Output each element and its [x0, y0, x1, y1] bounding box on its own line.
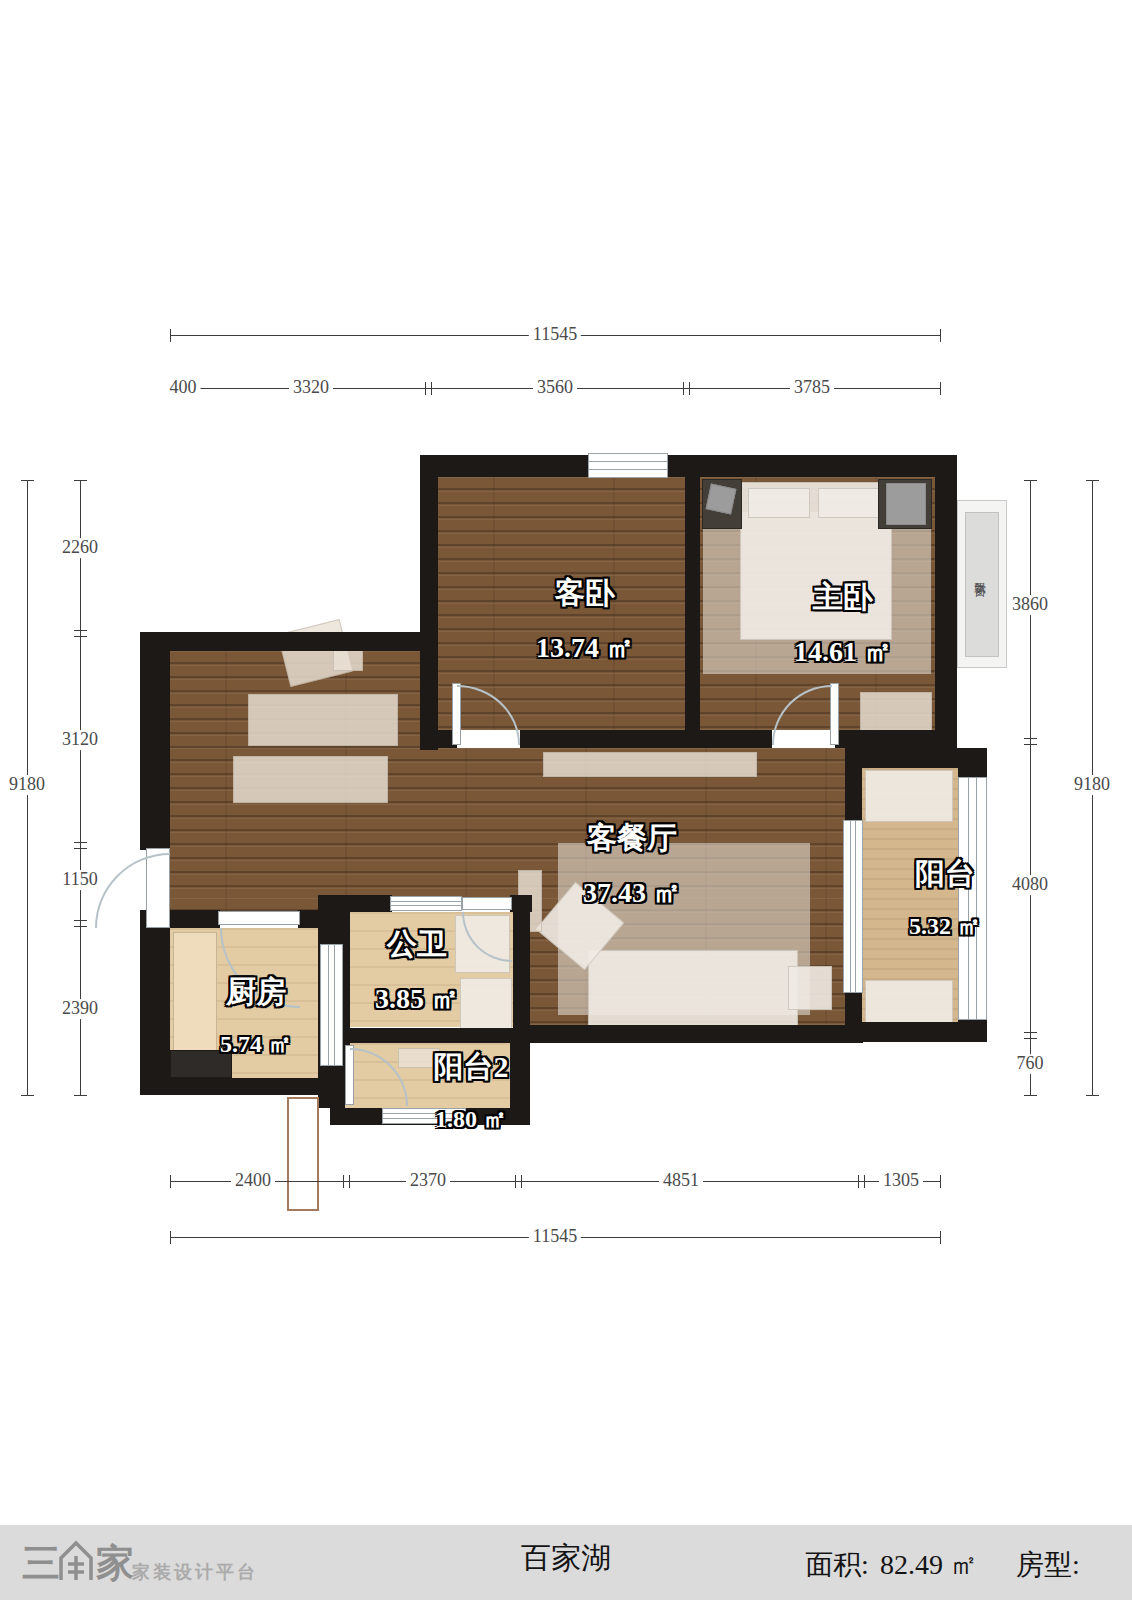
room-label-living-dining: 客餐厅 37.43 ㎡ — [583, 818, 681, 912]
room-label-balcony2: 阳台2 1.80 ㎡ — [434, 1047, 509, 1135]
room-label-balcony: 阳台 5.32 ㎡ — [909, 854, 981, 942]
wall-segment — [158, 632, 438, 651]
brand-logo-prefix: 三 — [22, 1538, 60, 1589]
dimension-label: 4080 — [1008, 875, 1052, 895]
window — [588, 453, 668, 478]
bay-window-sill — [965, 512, 999, 657]
dimension-label: 3120 — [58, 730, 102, 750]
room-area: 13.74 ㎡ — [536, 629, 634, 667]
furniture-washer — [865, 770, 953, 822]
dimension-label: 1150 — [58, 870, 101, 890]
area-label: 面积: — [805, 1546, 869, 1584]
wall-segment — [685, 477, 700, 730]
wall-segment — [140, 1078, 332, 1095]
bay-window-label: 飘窗 — [971, 572, 988, 576]
dimension-right-total: 9180 — [1086, 480, 1099, 1096]
furniture-decor — [886, 483, 926, 525]
dimension-label: 3560 — [533, 378, 577, 398]
room-name: 阳台 — [915, 854, 975, 895]
dimension-label: 760 — [1013, 1054, 1048, 1074]
wall-segment — [835, 730, 957, 748]
flue-duct — [287, 1097, 319, 1211]
dimension-left-total: 9180 — [21, 480, 34, 1096]
dimension-left-segments: 2260 3120 1150 2390 — [74, 480, 87, 1096]
room-label-bathroom: 公卫 3.85 ㎡ — [375, 924, 459, 1018]
dimension-label: 9180 — [1070, 775, 1114, 795]
furniture-wardrobe — [248, 694, 398, 746]
wall-segment — [520, 730, 772, 748]
room-area: 5.32 ㎡ — [909, 910, 981, 942]
wall-segment — [513, 895, 530, 1043]
project-name: 百家湖 — [521, 1538, 611, 1579]
sliding-door-balcony — [843, 820, 863, 993]
room-area: 5.74 ㎡ — [220, 1028, 292, 1060]
house-glyph-icon — [58, 1540, 94, 1582]
room-area: 1.80 ㎡ — [435, 1103, 507, 1135]
wall-segment — [958, 1020, 987, 1042]
dimension-label: 3785 — [790, 378, 834, 398]
brand-tagline: 家装设计平台 — [132, 1560, 258, 1584]
furniture-pillow — [748, 488, 810, 518]
wall-segment — [140, 928, 170, 1095]
wall-segment — [140, 632, 170, 850]
dimension-bottom-segments: 2400 2370 4851 1305 — [170, 1175, 941, 1188]
room-name: 厨房 — [226, 972, 286, 1013]
room-name: 阳台2 — [434, 1047, 509, 1088]
furniture-decor — [706, 484, 737, 515]
dimension-top-segments: 400 3320 3560 3785 — [170, 382, 941, 395]
furniture-decor — [333, 649, 363, 671]
dimension-label: 2390 — [58, 999, 102, 1019]
room-label-master-bedroom: 主卧 14.61 ㎡ — [794, 577, 892, 671]
furniture-sink — [460, 978, 512, 1030]
door-swing-arc — [95, 853, 170, 928]
room-name: 客卧 — [555, 573, 615, 614]
wall-segment — [420, 455, 438, 750]
dimension-label: 3860 — [1008, 595, 1052, 615]
wall-segment — [958, 748, 987, 777]
room-name: 主卧 — [813, 577, 873, 618]
dimension-label: 11545 — [529, 1227, 581, 1247]
wall-segment — [330, 1028, 525, 1043]
furniture-tv-cabinet — [543, 752, 757, 777]
sliding-door-kitchen — [320, 944, 343, 1066]
dimension-label: 2400 — [231, 1171, 275, 1191]
dimension-label: 3320 — [289, 378, 333, 398]
dimension-bottom-total: 11545 — [170, 1231, 941, 1244]
wall-segment — [513, 1025, 863, 1043]
door-bathroom — [462, 897, 512, 910]
area-value: 82.49 ㎡ — [880, 1546, 978, 1584]
room-name: 公卫 — [387, 924, 447, 965]
dimension-label: 400 — [166, 378, 201, 398]
furniture-sofa — [588, 950, 798, 1026]
dimension-label: 4851 — [659, 1171, 703, 1191]
wall-segment — [935, 455, 957, 748]
room-area: 37.43 ㎡ — [583, 874, 681, 912]
furniture-armchair — [788, 966, 832, 1010]
wall-segment — [420, 455, 957, 477]
dimension-label: 2370 — [406, 1171, 450, 1191]
wall-segment — [510, 1043, 530, 1125]
window — [390, 896, 462, 911]
dimension-top-total: 11545 — [170, 329, 941, 342]
floor-plan-page: 飘窗 客卧 13.74 ㎡ 主卧 14.61 ㎡ 客餐厅 37.43 ㎡ 阳台 … — [0, 0, 1132, 1600]
house-type-label: 房型: — [1016, 1546, 1080, 1584]
room-label-guest-bedroom: 客卧 13.74 ㎡ — [536, 573, 634, 667]
wall-segment — [318, 895, 345, 930]
furniture-dresser — [233, 756, 388, 803]
furniture-pillow — [818, 488, 880, 518]
dimension-label: 9180 — [5, 775, 49, 795]
room-name: 客餐厅 — [587, 818, 677, 859]
brand-logo-suffix: 家 — [96, 1538, 134, 1589]
room-label-kitchen: 厨房 5.74 ㎡ — [220, 972, 292, 1060]
door-kitchen — [218, 911, 300, 925]
dimension-label: 2260 — [58, 538, 102, 558]
dimension-right-segments: 3860 4080 760 — [1024, 480, 1037, 1096]
furniture-plant-stand — [865, 980, 953, 1025]
room-area: 14.61 ㎡ — [794, 633, 892, 671]
room-area: 3.85 ㎡ — [375, 980, 459, 1018]
dimension-label: 1305 — [879, 1171, 923, 1191]
dimension-label: 11545 — [529, 325, 581, 345]
